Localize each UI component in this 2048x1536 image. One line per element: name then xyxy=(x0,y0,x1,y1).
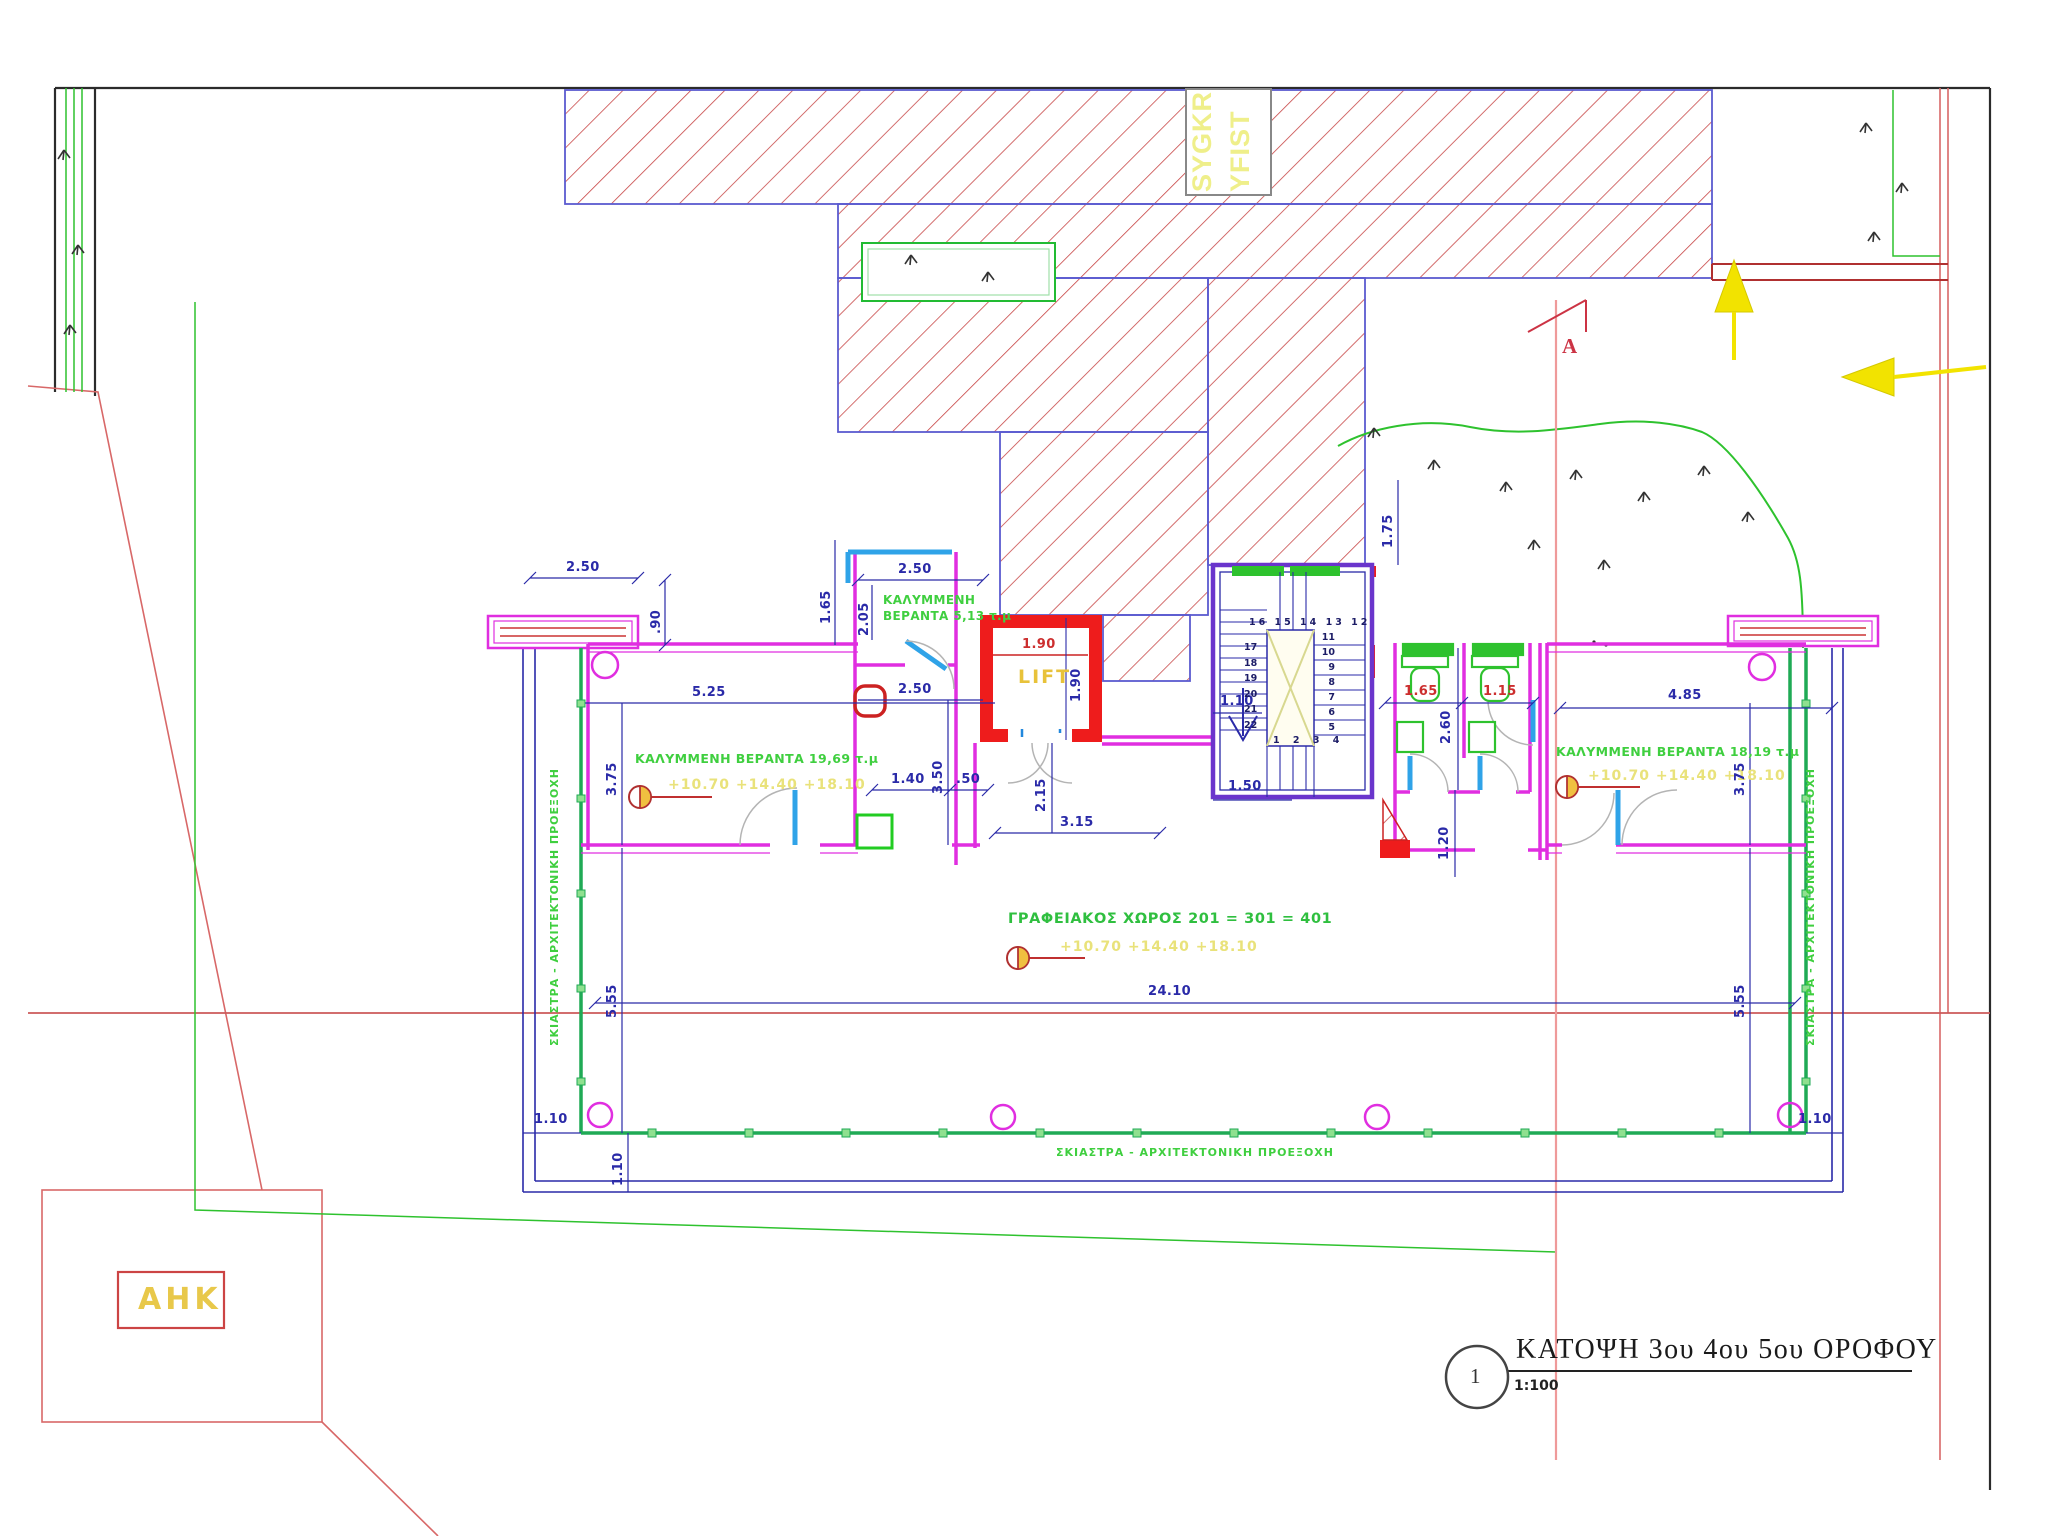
landscape-curve xyxy=(1338,422,1803,648)
lift-label: LIFT xyxy=(1018,666,1071,688)
sheet-title: ΚΑΤΟΨΗ 3ου 4ου 5ου ΟΡΟΦΟΥ xyxy=(1516,1334,1938,1366)
existing-building-hatch xyxy=(565,90,1712,681)
beam-right xyxy=(1728,616,1878,646)
existing-tag-line1: SYGKR xyxy=(1187,91,1218,192)
dim-left-165: 1.65 xyxy=(819,590,834,624)
planter-square xyxy=(857,815,892,848)
dim-right-110: 1.10 xyxy=(1798,1112,1832,1127)
shading-label-right: ΣΚΙΑΣΤΡΑ - ΑΡΧΙΤΕΚΤΟΝΙΚΗ ΠΡΟΕΞΟΧΗ xyxy=(1804,768,1817,1046)
sheet-number: 1 xyxy=(1470,1364,1481,1389)
section-letter: A xyxy=(1562,334,1577,359)
dim-right-375: 3.75 xyxy=(1733,762,1748,796)
stair-numbers-bottom: 1 2 3 4 xyxy=(1273,735,1344,746)
stair-numbers-left: 17 18 19 20 21 22 xyxy=(1244,640,1257,733)
dim-wc-115: 1.15 xyxy=(1483,684,1517,699)
dim-wc-165: 1.65 xyxy=(1404,684,1438,699)
levels-right: +10.70 +14.40 +18.10 xyxy=(1588,768,1786,784)
existing-tag-line2: YFIST xyxy=(1225,110,1256,192)
dim-top-left: 2.50 xyxy=(566,560,600,575)
dim-lobby-215: 2.15 xyxy=(1034,778,1049,812)
dim-mid-250: 2.50 xyxy=(898,682,932,697)
dim-wc-120: 1.20 xyxy=(1437,826,1452,860)
dim-wc-260: 2.60 xyxy=(1439,710,1454,744)
yellow-arrow-up-icon xyxy=(1715,260,1753,360)
office-label: ΓΡΑΦΕΙΑΚΟΣ ΧΩΡΟΣ 201 = 301 = 401 xyxy=(1008,911,1332,927)
dim-lift-width: 1.90 xyxy=(1022,637,1056,652)
dim-mid-50: .50 xyxy=(956,772,980,787)
shading-label-bottom: ΣΚΙΑΣΤΡΑ - ΑΡΧΙΤΕΚΤΟΝΙΚΗ ΠΡΟΕΞΟΧΗ xyxy=(1056,1146,1334,1159)
dim-left-110v: 1.10 xyxy=(611,1152,626,1186)
ahk-label: ΑΗΚ xyxy=(138,1282,222,1317)
dim-bottom-2410: 24.10 xyxy=(1148,984,1191,999)
dim-veranda-top: 2.50 xyxy=(898,562,932,577)
veranda-small-label-2: ΒΕΡΑΝΤΑ 5,13 τ.μ xyxy=(883,609,1011,623)
stair-numbers-top: 16 15 14 13 12 xyxy=(1249,617,1370,628)
levels-center: +10.70 +14.40 +18.10 xyxy=(1060,939,1258,955)
floor-plan-sheet: SYGKR YFIST ΑΗΚ A ΚΑΛΥΜΜΕΝΗ ΒΕΡΑΝΤΑ 19,6… xyxy=(0,0,2048,1536)
yellow-arrow-left-icon xyxy=(1842,358,1986,396)
duct-symbol xyxy=(855,686,885,716)
veranda-left-label: ΚΑΛΥΜΜΕΝΗ ΒΕΡΑΝΤΑ 19,69 τ.μ xyxy=(635,751,878,766)
stair-numbers-right: 11 10 9 8 7 6 5 xyxy=(1317,630,1335,735)
dim-right-485: 4.85 xyxy=(1668,688,1702,703)
dim-left-90: .90 xyxy=(649,610,664,634)
dim-left-555: 5.55 xyxy=(605,984,620,1018)
veranda-small-label-1: ΚΑΛΥΜΜΕΝΗ xyxy=(883,593,975,607)
shading-lines xyxy=(577,648,1810,1137)
section-line-a xyxy=(1528,300,1586,1460)
sheet-scale: 1:100 xyxy=(1514,1378,1559,1394)
dim-stair-150: 1.50 xyxy=(1228,779,1262,794)
columns xyxy=(588,652,1802,1129)
stair-core xyxy=(1213,565,1372,797)
shading-label-left: ΣΚΙΑΣΤΡΑ - ΑΡΧΙΤΕΚΤΟΝΙΚΗ ΠΡΟΕΞΟΧΗ xyxy=(548,768,561,1046)
dim-right-175: 1.75 xyxy=(1381,514,1396,548)
planter-box xyxy=(862,243,1055,301)
dim-left-525: 5.25 xyxy=(692,685,726,700)
dim-left-110: 1.10 xyxy=(534,1112,568,1127)
veranda-right-label: ΚΑΛΥΜΜΕΝΗ ΒΕΡΑΝΤΑ 18,19 τ.μ xyxy=(1556,744,1799,759)
dim-left-375: 3.75 xyxy=(605,762,620,796)
dim-veranda-205: 2.05 xyxy=(857,602,872,636)
dim-lift-height: 1.90 xyxy=(1069,668,1084,702)
dim-lobby-315: 3.15 xyxy=(1060,815,1094,830)
existing-building-tag: SYGKR YFIST xyxy=(1185,88,1272,196)
dim-right-555: 5.55 xyxy=(1733,984,1748,1018)
dim-mid-140: 1.40 xyxy=(891,772,925,787)
dim-mid-350: 3.50 xyxy=(931,760,946,794)
levels-left: +10.70 +14.40 +18.10 xyxy=(668,777,866,793)
